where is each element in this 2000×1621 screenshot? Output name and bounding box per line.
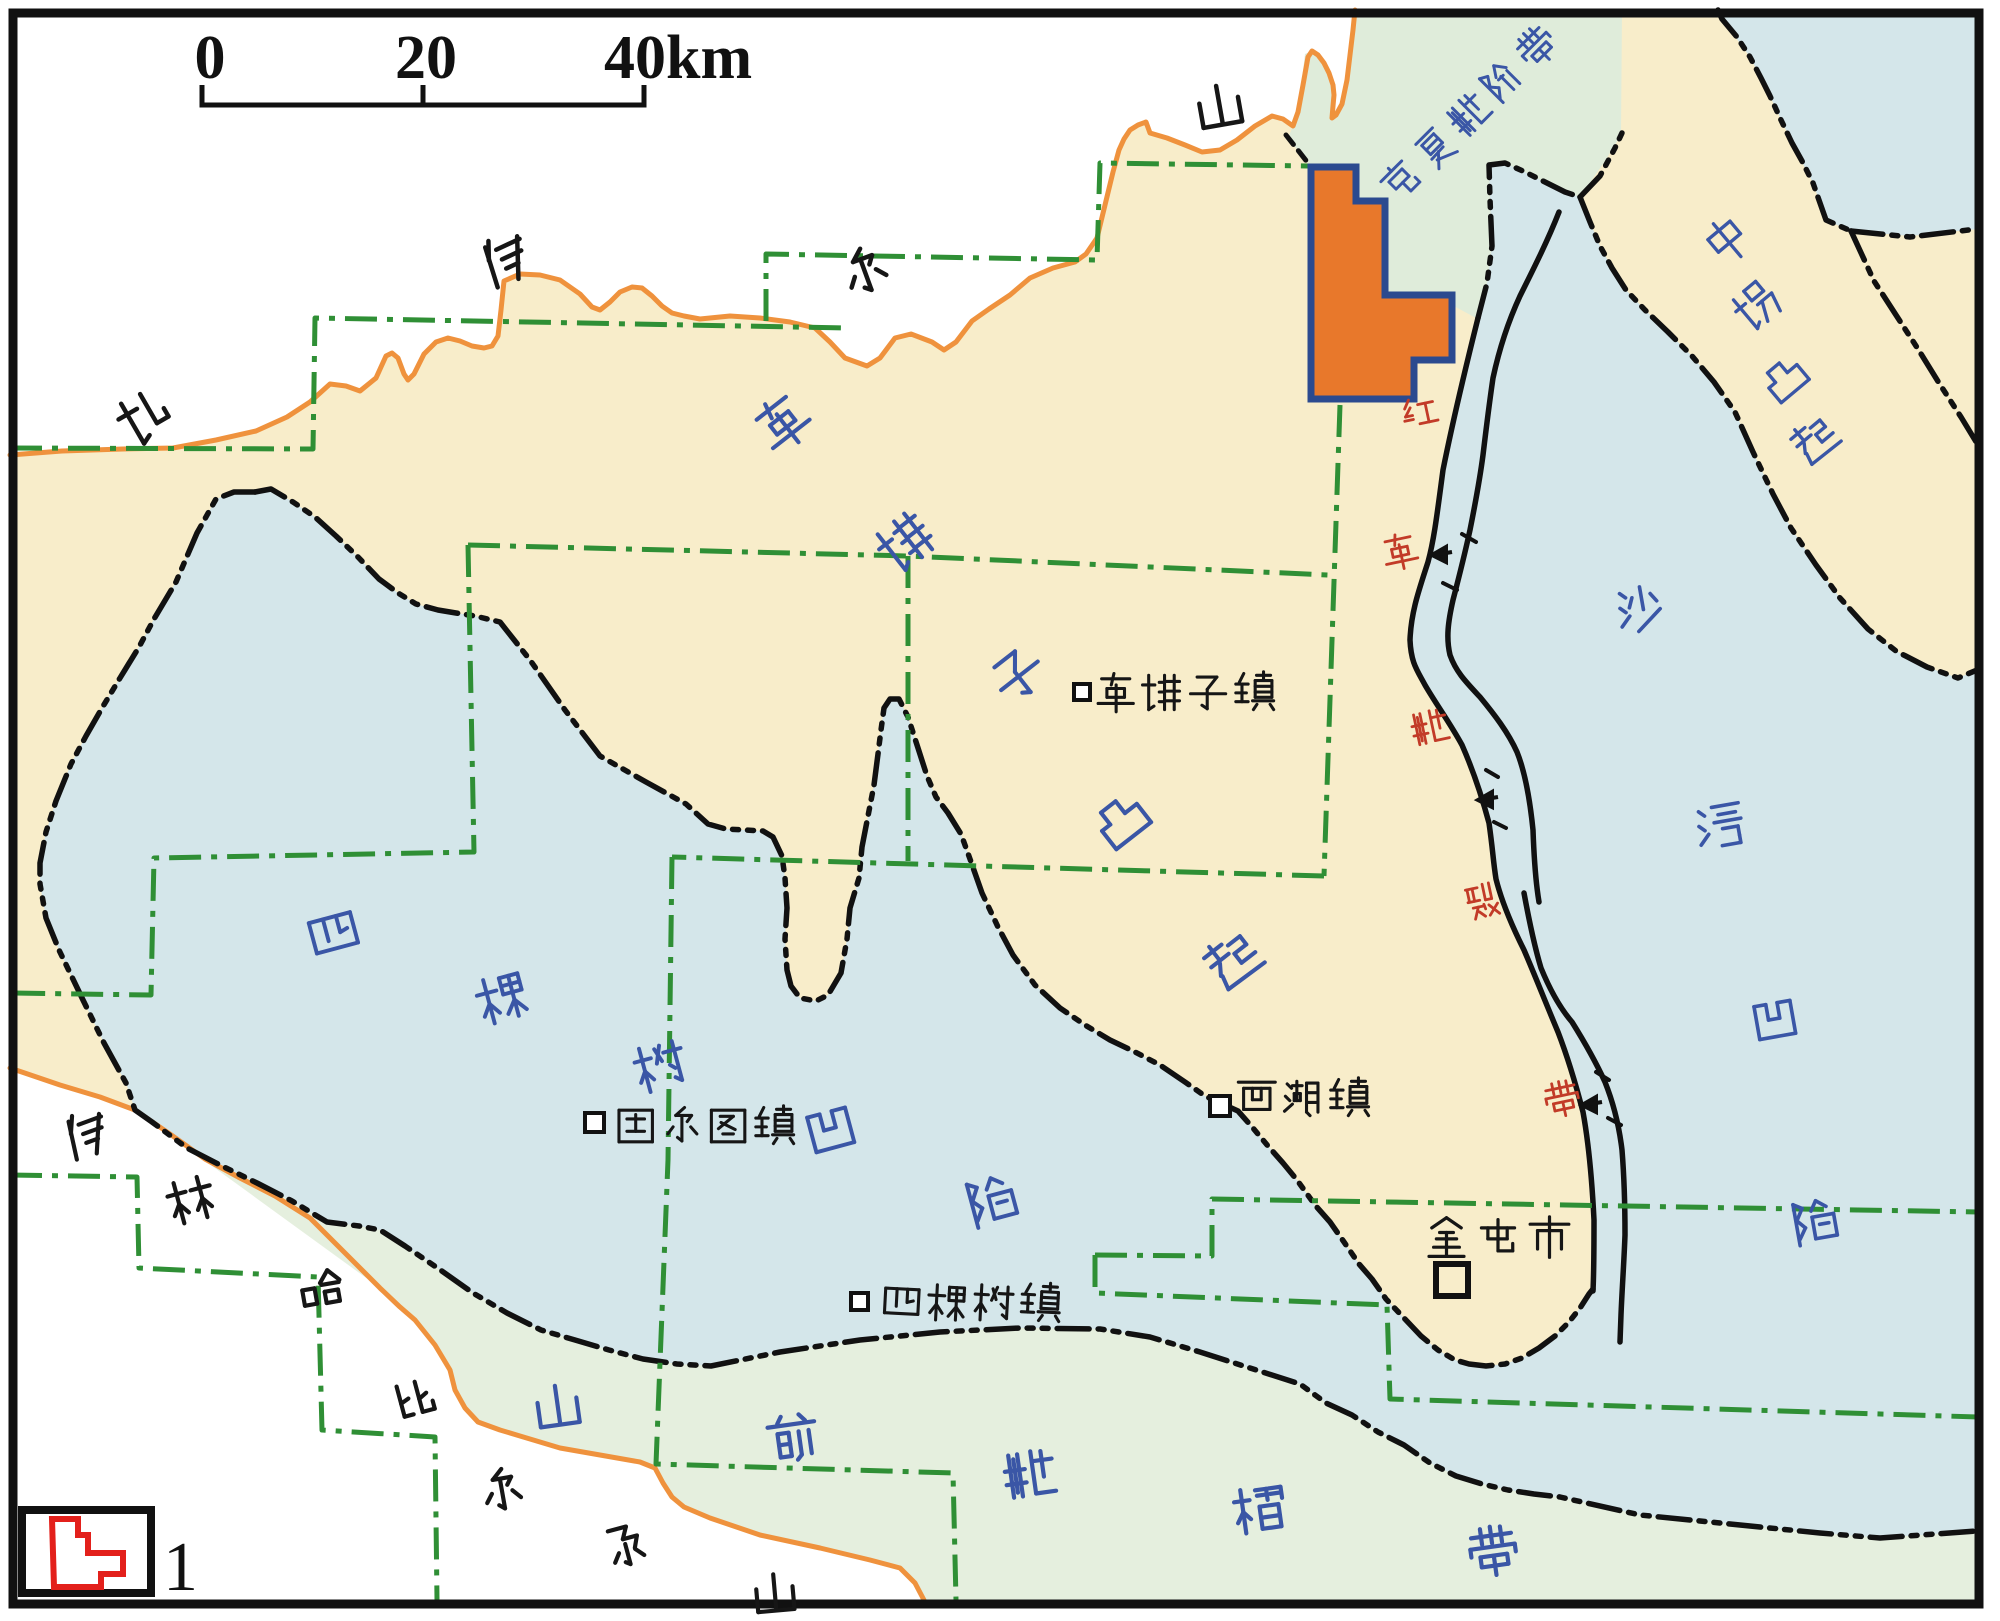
- svg-text:1: 1: [163, 1529, 198, 1606]
- svg-text:20: 20: [395, 24, 457, 92]
- svg-text:40km: 40km: [604, 24, 752, 92]
- svg-text:0: 0: [195, 24, 226, 92]
